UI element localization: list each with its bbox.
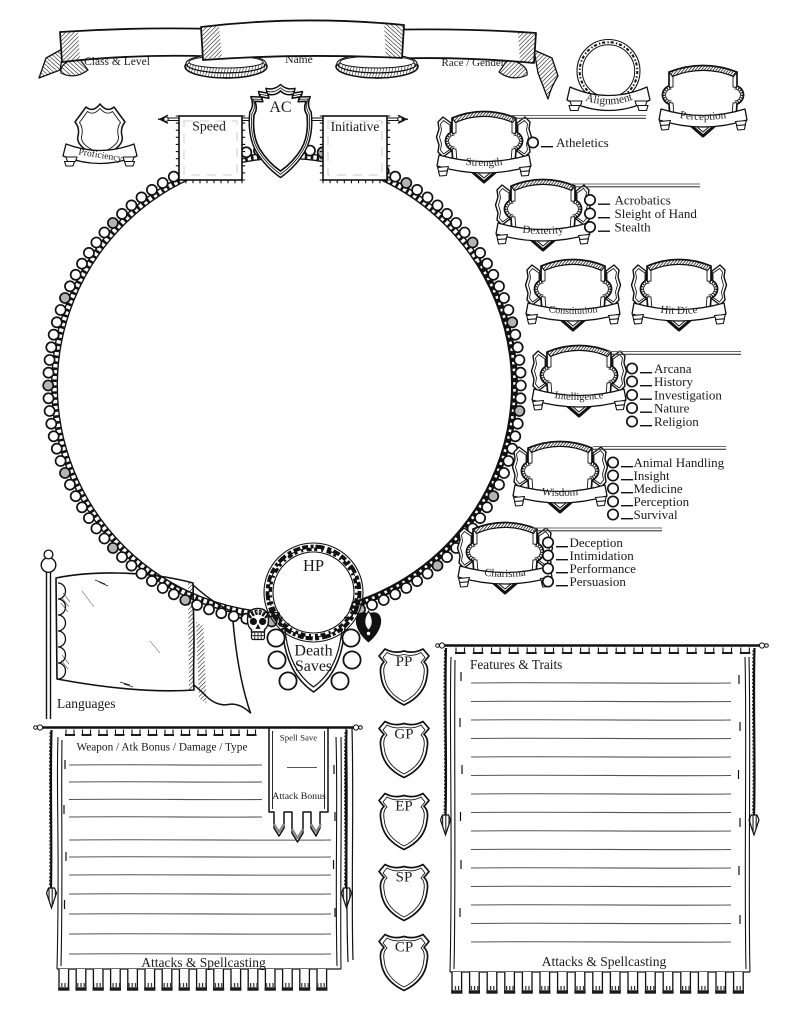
svg-text:Weapon / Atk Bonus / Damage /: Weapon / Atk Bonus / Damage / Type: [77, 742, 248, 754]
svg-text:PP: PP: [396, 654, 413, 670]
svg-text:Attacks & Spellcasting: Attacks & Spellcasting: [141, 955, 266, 970]
svg-text:Features & Traits: Features & Traits: [470, 657, 562, 672]
svg-text:Class & Level: Class & Level: [84, 56, 150, 68]
svg-text:SP: SP: [396, 870, 413, 886]
svg-text:Attacks & Spellcasting: Attacks & Spellcasting: [542, 954, 667, 969]
svg-text:Perception: Perception: [679, 109, 727, 123]
svg-text:Survival: Survival: [634, 507, 678, 522]
svg-text:Dexterity: Dexterity: [522, 224, 565, 237]
svg-text:Intelligence: Intelligence: [554, 390, 605, 403]
svg-text:GP: GP: [394, 727, 413, 743]
svg-text:Strength: Strength: [465, 156, 503, 169]
svg-text:Initiative: Initiative: [331, 119, 380, 134]
svg-text:Persuasion: Persuasion: [570, 574, 627, 589]
svg-text:Charisma: Charisma: [484, 567, 527, 580]
svg-text:Wisdom: Wisdom: [541, 486, 579, 499]
svg-text:Speed: Speed: [192, 119, 226, 134]
svg-text:Saves: Saves: [295, 658, 332, 675]
svg-text:Death: Death: [294, 643, 332, 660]
svg-text:HP: HP: [303, 556, 324, 575]
svg-text:Religion: Religion: [654, 414, 699, 429]
svg-text:Stealth: Stealth: [615, 220, 652, 235]
svg-text:Atheletics: Atheletics: [556, 135, 609, 150]
svg-text:Constitution: Constitution: [548, 304, 598, 317]
svg-text:Languages: Languages: [57, 696, 115, 711]
svg-text:Name: Name: [285, 54, 312, 66]
svg-text:Hit Dice: Hit Dice: [660, 304, 698, 317]
svg-text:CP: CP: [395, 940, 413, 956]
svg-text:EP: EP: [395, 799, 413, 815]
svg-text:Spell Save: Spell Save: [280, 733, 317, 743]
svg-text:Attack Bonus: Attack Bonus: [272, 791, 326, 802]
svg-text:AC: AC: [269, 99, 291, 116]
svg-text:Race / Gender: Race / Gender: [442, 57, 505, 69]
